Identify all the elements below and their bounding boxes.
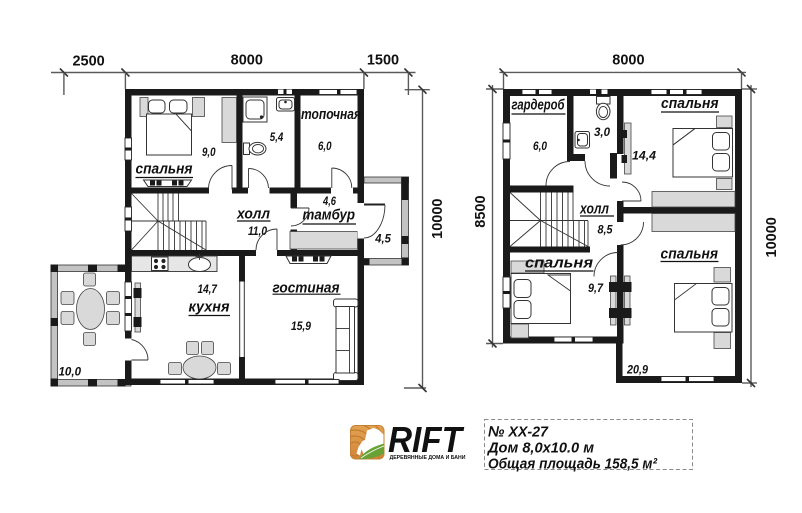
- svg-text:11,0: 11,0: [248, 224, 267, 238]
- svg-text:10000: 10000: [430, 199, 446, 239]
- svg-text:4,6: 4,6: [322, 194, 336, 208]
- svg-text:спальня: спальня: [136, 162, 193, 178]
- svg-text:ДЕРЕВЯННЫЕ ДОМА И БАНИ: ДЕРЕВЯННЫЕ ДОМА И БАНИ: [390, 455, 466, 461]
- svg-text:тамбур: тамбур: [303, 208, 356, 224]
- svg-text:кухня: кухня: [189, 300, 230, 316]
- svg-text:1500: 1500: [367, 53, 399, 69]
- svg-text:2500: 2500: [72, 54, 104, 70]
- svg-text:5,4: 5,4: [270, 130, 284, 144]
- svg-text:3,0: 3,0: [594, 125, 610, 139]
- svg-text:8500: 8500: [473, 195, 489, 227]
- svg-text:6,0: 6,0: [318, 139, 332, 153]
- svg-text:6,0: 6,0: [533, 139, 547, 153]
- svg-text:10000: 10000: [764, 217, 780, 257]
- svg-text:RIFT: RIFT: [388, 419, 465, 460]
- svg-text:8,5: 8,5: [598, 223, 614, 237]
- svg-text:гардероб: гардероб: [512, 98, 566, 114]
- svg-text:15,9: 15,9: [291, 319, 311, 333]
- svg-text:8000: 8000: [612, 53, 644, 69]
- svg-text:№ ХХ-27: № ХХ-27: [488, 424, 549, 441]
- svg-text:8000: 8000: [231, 53, 263, 69]
- svg-text:9,7: 9,7: [588, 281, 604, 295]
- svg-text:спальня: спальня: [661, 96, 719, 112]
- svg-text:спальня: спальня: [525, 256, 593, 272]
- svg-text:14,7: 14,7: [198, 282, 218, 296]
- svg-text:9,0: 9,0: [202, 145, 216, 159]
- svg-text:10,0: 10,0: [59, 365, 82, 379]
- svg-text:холл: холл: [579, 202, 609, 218]
- svg-text:4,5: 4,5: [374, 232, 391, 246]
- svg-text:Дом 8,0х10.0 м: Дом 8,0х10.0 м: [486, 440, 594, 457]
- svg-text:холл: холл: [236, 207, 270, 223]
- svg-text:14,4: 14,4: [632, 149, 656, 163]
- svg-text:топочная: топочная: [301, 107, 361, 123]
- svg-text:Общая площадь 158,5 м²: Общая площадь 158,5 м²: [488, 456, 658, 473]
- svg-text:20,9: 20,9: [626, 363, 648, 377]
- svg-text:спальня: спальня: [661, 246, 719, 262]
